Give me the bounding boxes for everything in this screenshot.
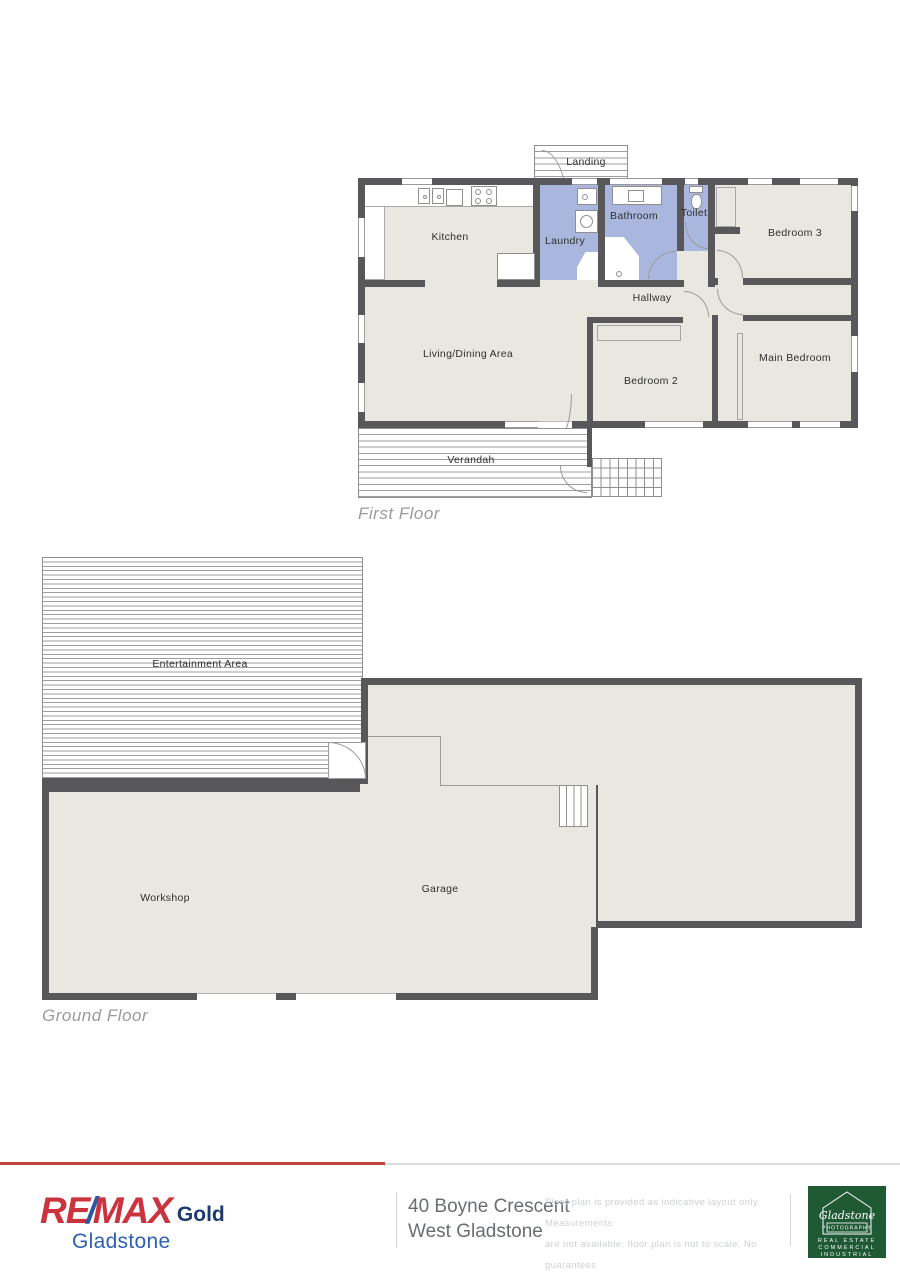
- footer-gray-rule: [385, 1163, 900, 1165]
- window: [610, 178, 662, 185]
- kitchen-sink-icon: [418, 188, 430, 204]
- window: [685, 178, 698, 185]
- wall: [42, 778, 365, 785]
- window: [402, 178, 432, 185]
- wall: [708, 278, 718, 285]
- wall: [715, 227, 740, 234]
- remax-gold: Gold: [177, 1203, 225, 1226]
- window: [358, 383, 365, 412]
- exterior-stairs: [592, 458, 662, 497]
- kitchen-sink-icon: [432, 188, 444, 204]
- room-label-bathroom: Bathroom: [610, 210, 658, 222]
- wall: [497, 280, 540, 287]
- remax-office: Gladstone: [72, 1230, 170, 1254]
- wall: [598, 280, 684, 287]
- kitchen-bench-left: [365, 207, 385, 280]
- footer-divider: [396, 1192, 397, 1248]
- room-label-garage: Garage: [422, 883, 459, 895]
- toilet-cistern-icon: [689, 186, 703, 193]
- wall: [587, 317, 683, 323]
- stove-icon: [471, 186, 497, 206]
- interior-line: [368, 736, 441, 737]
- photo-logo-script: Gladstone: [819, 1209, 876, 1222]
- ground-floor-title: Ground Floor: [42, 1006, 148, 1026]
- washing-machine-icon: [575, 210, 598, 233]
- room-label-bedroom2: Bedroom 2: [624, 375, 678, 387]
- remax-logo: RE/MAXGold: [40, 1190, 225, 1232]
- interior-line: [440, 736, 441, 786]
- window: [800, 421, 840, 428]
- room-label-hallway: Hallway: [633, 292, 672, 304]
- room-label-main-bedroom: Main Bedroom: [759, 352, 831, 364]
- room-label-bedroom3: Bedroom 3: [768, 227, 822, 239]
- photo-logo-line2: COMMERCIAL: [818, 1245, 875, 1251]
- remax-max: MAX: [93, 1190, 172, 1231]
- room-label-workshop: Workshop: [140, 892, 189, 904]
- room-label-toilet: Toilet: [681, 207, 707, 219]
- disclaimer-text: Floor plan is provided as indicative lay…: [545, 1192, 785, 1273]
- wall: [743, 315, 853, 321]
- bedroom2-robe: [597, 325, 681, 341]
- garage-door-opening: [296, 993, 396, 1000]
- room-label-landing: Landing: [566, 156, 605, 168]
- wall: [708, 178, 715, 287]
- window: [572, 178, 597, 185]
- house-outline-icon: Gladstone PHOTOGRAPHY REAL ESTATE COMMER…: [808, 1186, 886, 1258]
- laundry-tub-icon: [577, 188, 597, 205]
- photo-logo-sub: PHOTOGRAPHY: [822, 1226, 872, 1232]
- window: [851, 186, 858, 211]
- internal-stairs: [559, 785, 588, 827]
- footer-divider: [790, 1194, 791, 1246]
- window: [505, 421, 540, 428]
- wall: [712, 315, 718, 428]
- footer-red-rule: [0, 1162, 385, 1165]
- disclaimer-line1: Floor plan is provided as indicative lay…: [545, 1192, 785, 1234]
- window: [748, 421, 792, 428]
- bath-tap-icon: [616, 271, 622, 277]
- window: [748, 178, 772, 185]
- wall: [587, 317, 593, 428]
- window: [800, 178, 838, 185]
- bedroom3-robe: [716, 187, 736, 227]
- photo-logo-line1: REAL ESTATE: [818, 1238, 876, 1244]
- wall: [598, 178, 605, 287]
- window: [358, 218, 365, 257]
- bathroom-vanity-icon: [612, 186, 662, 205]
- window: [851, 336, 858, 372]
- floor-plan-page: Landing: [0, 0, 900, 1273]
- room-label-laundry: Laundry: [545, 235, 585, 247]
- photo-logo-line3: INDUSTRIAL: [821, 1252, 874, 1258]
- kitchen-island: [497, 253, 535, 280]
- room-label-entertainment: Entertainment Area: [152, 658, 247, 670]
- room-label-living: Living/Dining Area: [423, 348, 513, 360]
- dishwasher-icon: [446, 189, 463, 206]
- gladstone-photography-logo: Gladstone PHOTOGRAPHY REAL ESTATE COMMER…: [808, 1186, 886, 1258]
- first-floor-title: First Floor: [358, 504, 440, 524]
- disclaimer-line2: are not available, floor plan is not to …: [545, 1234, 785, 1273]
- room-label-verandah: Verandah: [447, 454, 494, 466]
- remax-re: RE: [40, 1190, 89, 1231]
- wall: [358, 280, 425, 287]
- window: [645, 421, 703, 428]
- room-label-kitchen: Kitchen: [431, 231, 468, 243]
- wall: [743, 278, 853, 285]
- garage-door-opening: [197, 993, 276, 1000]
- window: [358, 315, 365, 343]
- main-bedroom-robe: [737, 333, 743, 420]
